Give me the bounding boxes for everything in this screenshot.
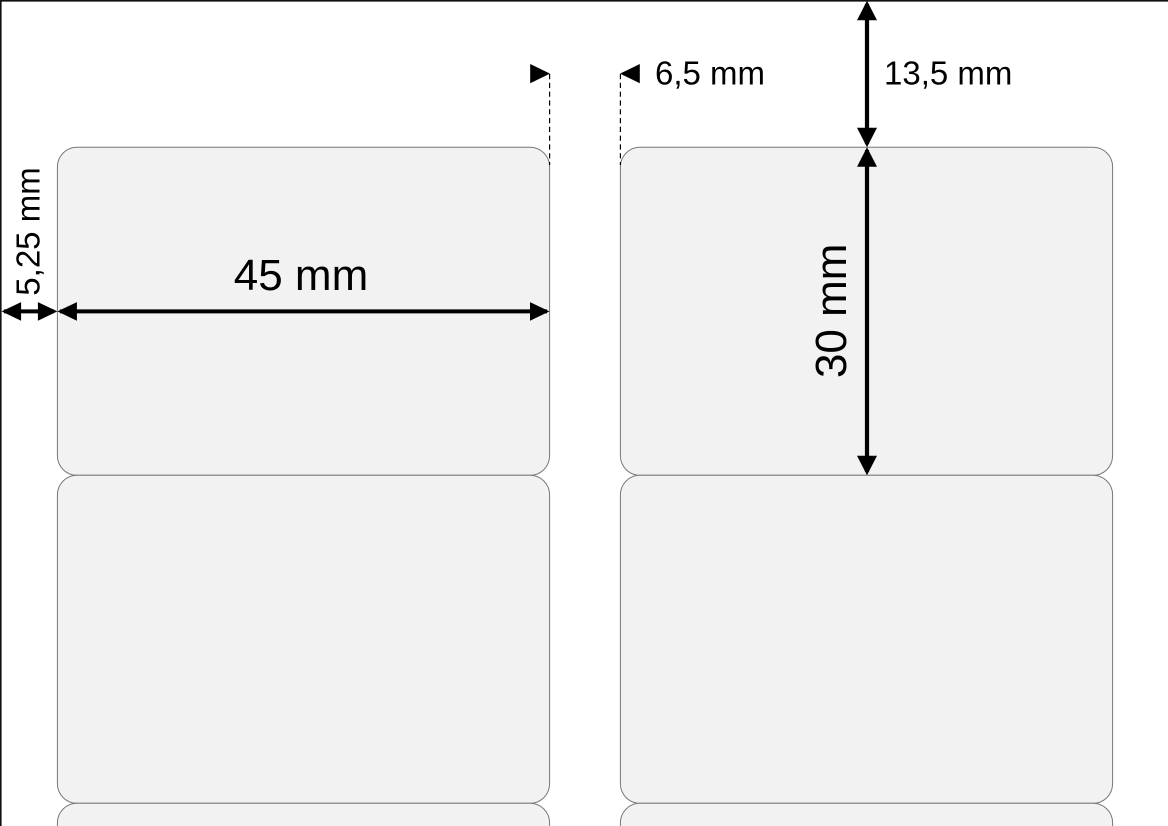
svg-text:30 mm: 30 mm xyxy=(807,244,856,378)
svg-text:45 mm: 45 mm xyxy=(234,251,368,300)
svg-text:13,5 mm: 13,5 mm xyxy=(884,55,1012,92)
svg-text:5,25 mm: 5,25 mm xyxy=(10,167,47,295)
svg-text:6,5 mm: 6,5 mm xyxy=(655,55,765,92)
